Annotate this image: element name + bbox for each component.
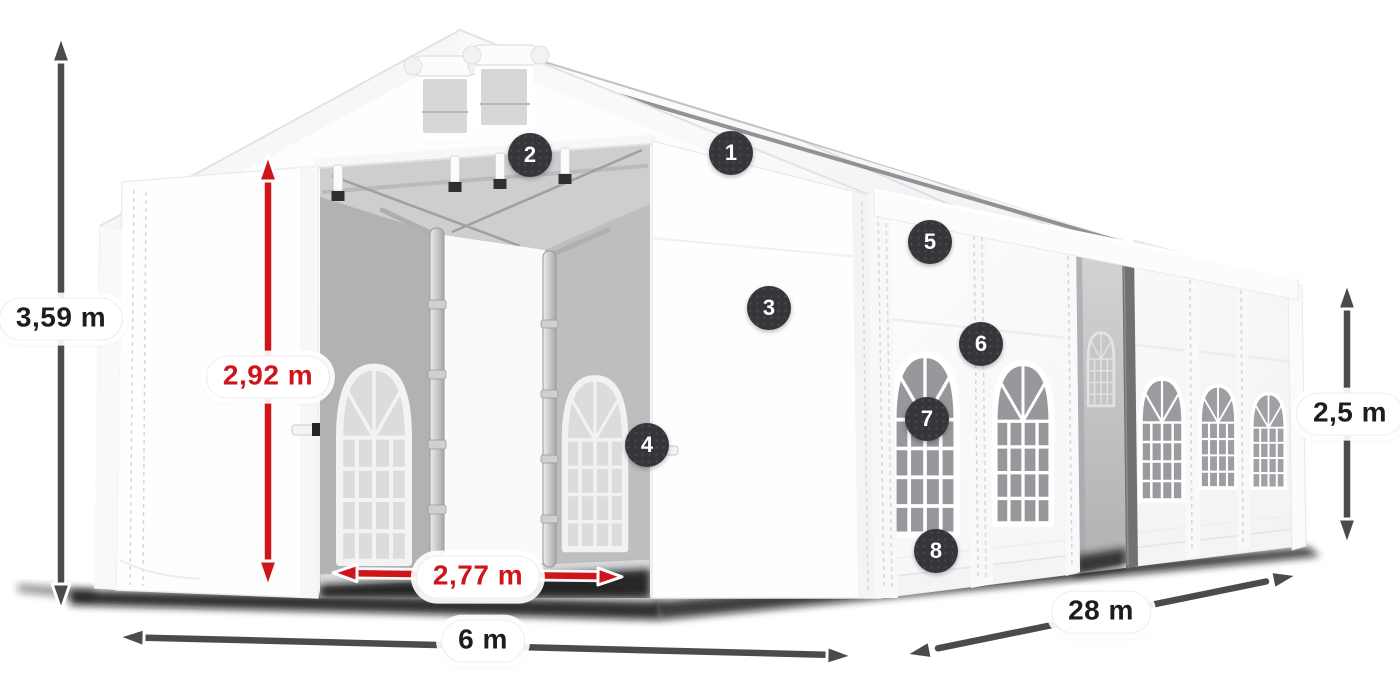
feature-marker-2[interactable]: 2 — [508, 133, 552, 177]
tent-illustration — [0, 0, 1400, 700]
interior-window — [565, 378, 625, 549]
feature-marker-6[interactable]: 6 — [959, 322, 1003, 366]
feature-marker-5[interactable]: 5 — [908, 220, 952, 264]
interior-pole — [541, 251, 558, 567]
dimension-label-entrance-height: 2,92 m — [206, 356, 330, 399]
feature-marker-4[interactable]: 4 — [625, 423, 669, 467]
interior-window — [340, 367, 409, 562]
front-right-panel — [652, 141, 880, 598]
dimension-label-entrance-width: 2,77 m — [416, 556, 540, 599]
dimension-label-side-height: 2,5 m — [1296, 393, 1400, 436]
gable-vent-windows — [404, 45, 549, 136]
tent-dimensions-diagram: 3,59 m 2,92 m 2,77 m 6 m 28 m 2,5 m 1 2 … — [0, 0, 1400, 700]
feature-marker-7[interactable]: 7 — [905, 397, 949, 441]
feature-marker-8[interactable]: 8 — [914, 529, 958, 573]
door-handle — [292, 423, 320, 436]
vent-window — [478, 66, 530, 128]
feature-marker-3[interactable]: 3 — [747, 286, 791, 330]
side-doorway — [1076, 246, 1138, 576]
dimension-label-width: 6 m — [441, 620, 525, 663]
feature-marker-1[interactable]: 1 — [709, 131, 753, 175]
dimension-label-total-height: 3,59 m — [0, 298, 123, 341]
side-window — [995, 363, 1052, 524]
vent-window — [420, 76, 470, 136]
interior-pole — [428, 228, 446, 578]
side-window — [1200, 386, 1236, 488]
side-window — [893, 355, 957, 535]
interior-see-through — [437, 234, 545, 576]
side-window — [1141, 379, 1184, 501]
side-window — [1252, 393, 1285, 488]
front-entrance-interior — [320, 141, 650, 598]
dimension-label-length: 28 m — [1051, 591, 1151, 634]
